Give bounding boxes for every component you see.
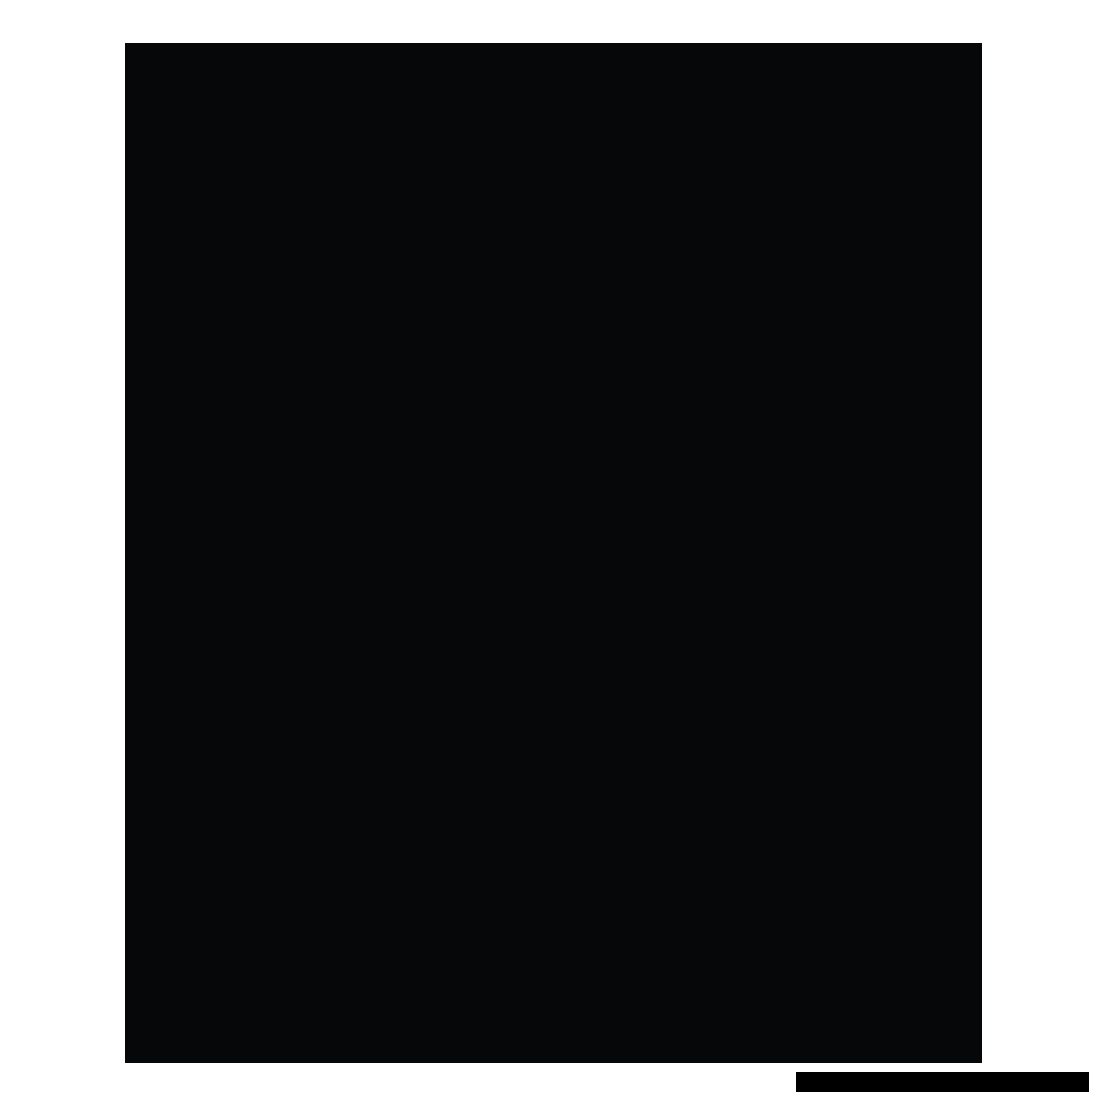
bottom-black-bar bbox=[796, 1072, 1089, 1092]
black-content-panel bbox=[125, 43, 982, 1063]
page-background bbox=[0, 0, 1100, 1100]
